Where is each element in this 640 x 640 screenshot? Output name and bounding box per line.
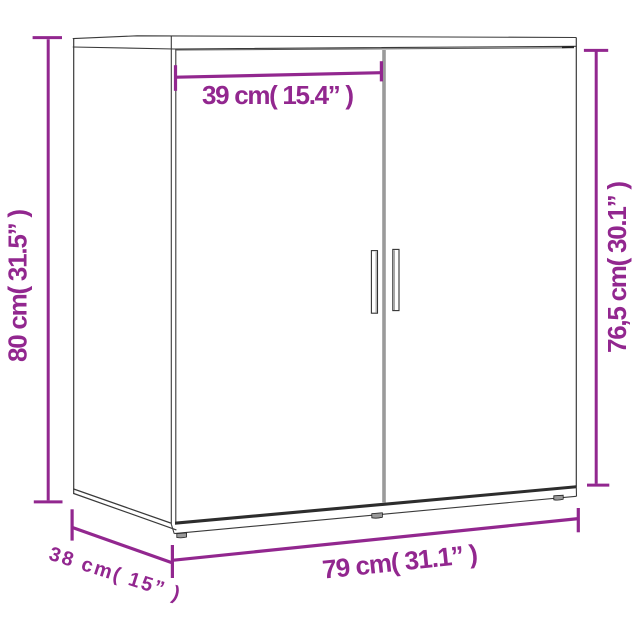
svg-text:80 cm( 31.5” ): 80 cm( 31.5” ) xyxy=(3,209,33,362)
svg-text:38 cm( 15” ): 38 cm( 15” ) xyxy=(46,543,182,605)
svg-text:76,5 cm( 30.1” ): 76,5 cm( 30.1” ) xyxy=(602,181,632,353)
svg-text:39 cm( 15.4” ): 39 cm( 15.4” ) xyxy=(202,80,354,110)
svg-text:79 cm( 31.1” ): 79 cm( 31.1” ) xyxy=(321,538,479,584)
